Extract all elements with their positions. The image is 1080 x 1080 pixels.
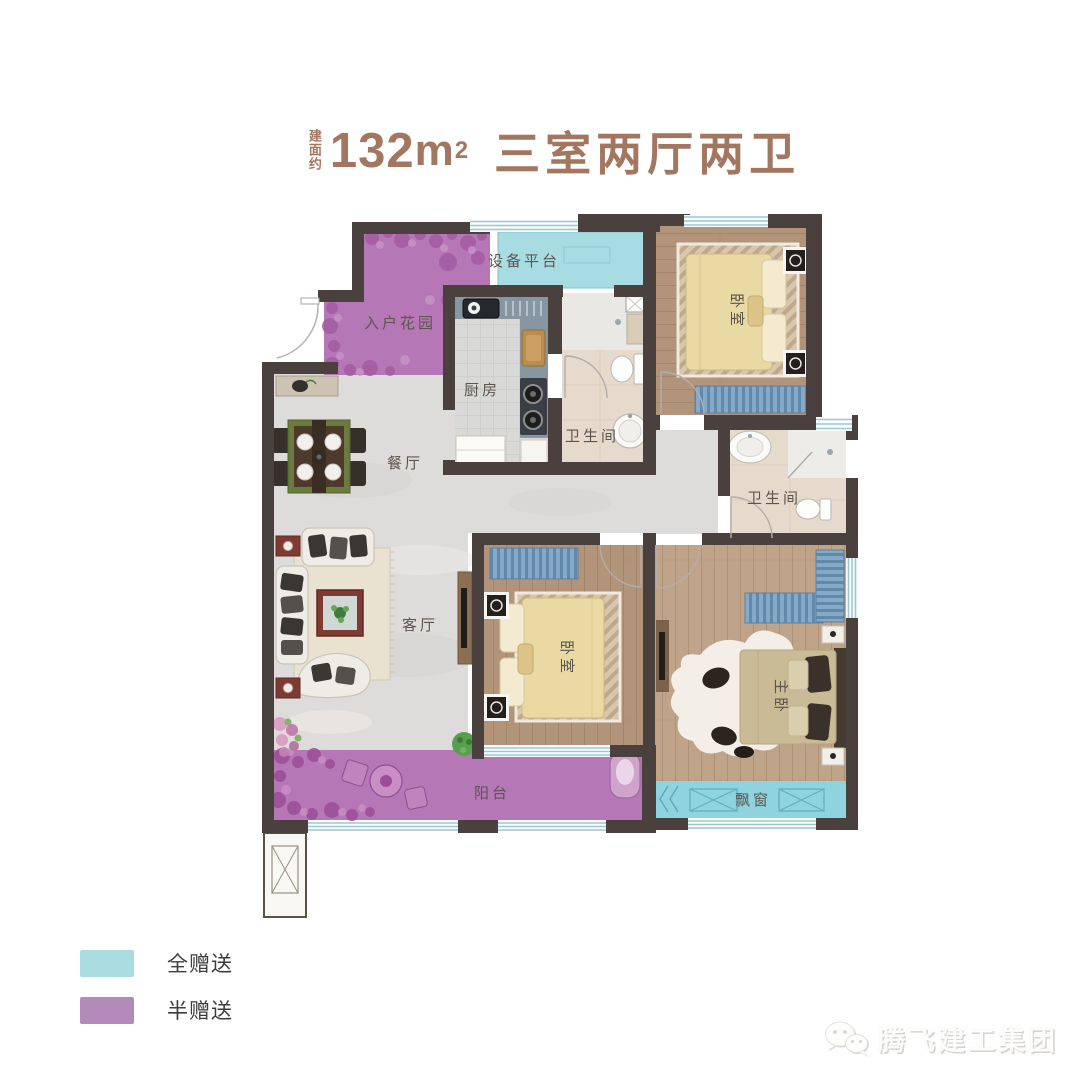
legend-label-half-gift: 半赠送 (167, 995, 233, 1025)
window-master-side (846, 558, 858, 618)
window-balcony-left (308, 821, 458, 832)
legend-item-half-gift: 半赠送 (80, 995, 233, 1025)
label-entry-garden: 入户花园 (364, 315, 436, 332)
page: 建面约 132 m 2 三室两厅两卫 (0, 0, 1080, 1080)
brand-watermark: 腾飞建工集团 (824, 1019, 1058, 1058)
label-kitchen: 厨房 (464, 382, 500, 399)
full-gift-swatch (80, 950, 134, 977)
label-living: 客厅 (402, 617, 438, 634)
label-equipment-platform: 设备平台 (488, 253, 560, 270)
label-bath1: 卫生间 (565, 428, 619, 445)
room-kitchen (455, 297, 548, 464)
duct-shaft (264, 833, 306, 917)
floor-plan: 餐厅 客厅 厨房 卫生间 卫生间 入户花园 设备平台 阳台 飘窗 卧室 卧室 主… (0, 0, 1080, 1080)
window-bay (688, 819, 816, 830)
label-bath2: 卫生间 (747, 490, 801, 507)
label-bedroom2: 卧室 (558, 640, 575, 676)
window-bedroom1 (684, 215, 768, 227)
label-dining: 餐厅 (387, 455, 423, 472)
legend-label-full-gift: 全赠送 (167, 948, 233, 978)
room-balcony (270, 748, 642, 821)
window-platform (470, 219, 578, 232)
wechat-icon (824, 1020, 870, 1058)
window-bath2 (816, 417, 852, 431)
half-gift-swatch (80, 997, 134, 1024)
legend-item-full-gift: 全赠送 (80, 948, 233, 978)
window-balcony-right (498, 821, 606, 832)
window-bedroom2-balcony (484, 746, 610, 757)
label-master: 主卧 (772, 679, 789, 715)
entry-door (277, 298, 319, 358)
room-bath2 (729, 430, 846, 533)
label-balcony: 阳台 (474, 785, 510, 802)
brand-name: 腾飞建工集团 (878, 1019, 1058, 1058)
label-bedroom1: 卧室 (728, 293, 745, 329)
room-master (655, 545, 846, 818)
label-bay-window: 飘窗 (735, 791, 771, 809)
legend: 全赠送 半赠送 (80, 948, 233, 1042)
